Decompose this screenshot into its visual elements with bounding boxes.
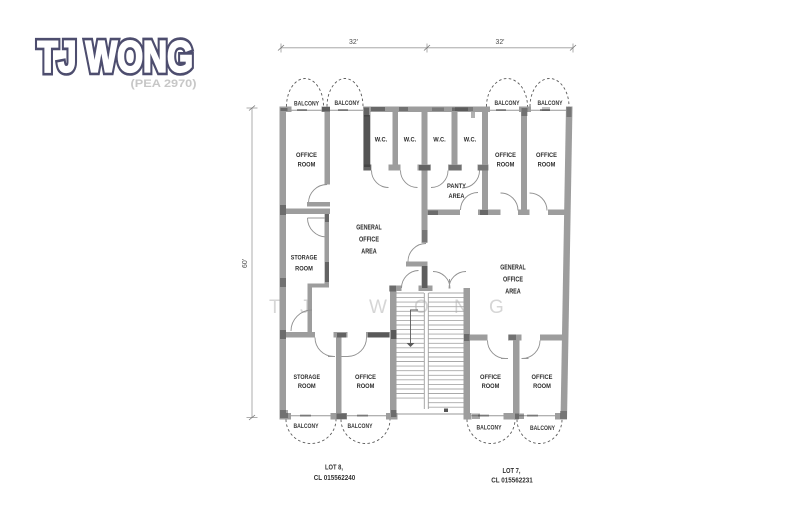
svg-text:OFFICE: OFFICE xyxy=(296,152,318,159)
svg-text:32': 32' xyxy=(496,37,506,46)
svg-text:STORAGE: STORAGE xyxy=(291,255,318,262)
svg-text:W.C.: W.C. xyxy=(375,137,388,144)
svg-text:G: G xyxy=(489,297,504,318)
svg-text:OFFICE: OFFICE xyxy=(355,374,377,381)
svg-text:BALCONY: BALCONY xyxy=(477,425,503,432)
svg-text:STORAGE: STORAGE xyxy=(294,374,321,381)
svg-text:32': 32' xyxy=(349,37,359,46)
svg-text:PANTY: PANTY xyxy=(447,183,467,190)
svg-text:BALCONY: BALCONY xyxy=(348,423,374,430)
svg-text:OFFICE: OFFICE xyxy=(495,152,517,159)
svg-text:LOT 7,: LOT 7, xyxy=(503,468,521,475)
svg-text:BALCONY: BALCONY xyxy=(335,100,361,107)
svg-text:GENERAL: GENERAL xyxy=(356,223,382,232)
svg-text:BALCONY: BALCONY xyxy=(294,101,320,108)
svg-text:ROOM: ROOM xyxy=(295,266,313,273)
svg-text:BALCONY: BALCONY xyxy=(538,100,564,107)
svg-text:CL 015562231: CL 015562231 xyxy=(491,478,533,485)
svg-text:OFFICE: OFFICE xyxy=(532,374,554,381)
svg-text:GENERAL: GENERAL xyxy=(500,263,526,272)
svg-text:BALCONY: BALCONY xyxy=(530,425,556,432)
svg-text:AREA: AREA xyxy=(505,287,521,296)
svg-text:BALCONY: BALCONY xyxy=(294,423,320,430)
svg-text:W.C.: W.C. xyxy=(404,137,417,144)
svg-text:(PEA 2970): (PEA 2970) xyxy=(131,78,197,90)
svg-text:ROOM: ROOM xyxy=(298,383,316,390)
svg-text:ROOM: ROOM xyxy=(357,383,375,390)
svg-text:ROOM: ROOM xyxy=(533,383,551,390)
svg-text:BALCONY: BALCONY xyxy=(495,100,521,107)
svg-text:OFFICE: OFFICE xyxy=(359,235,379,244)
svg-text:ROOM: ROOM xyxy=(298,162,316,169)
svg-text:W: W xyxy=(369,297,387,318)
svg-text:CL 015562240: CL 015562240 xyxy=(314,475,356,482)
svg-text:OFFICE: OFFICE xyxy=(536,152,558,159)
svg-text:TJ WONG: TJ WONG xyxy=(38,33,194,81)
svg-text:OFFICE: OFFICE xyxy=(503,275,523,284)
svg-text:AREA: AREA xyxy=(449,193,465,200)
svg-text:ROOM: ROOM xyxy=(538,162,556,169)
svg-text:LOT 8,: LOT 8, xyxy=(325,465,343,472)
svg-text:W.C.: W.C. xyxy=(433,137,446,144)
svg-text:AREA: AREA xyxy=(361,247,377,256)
svg-text:T: T xyxy=(269,297,281,318)
svg-text:W.C.: W.C. xyxy=(464,137,477,144)
svg-text:OFFICE: OFFICE xyxy=(480,374,502,381)
svg-text:ROOM: ROOM xyxy=(497,162,515,169)
svg-text:ROOM: ROOM xyxy=(482,383,500,390)
svg-text:O: O xyxy=(414,297,429,318)
svg-text:60': 60' xyxy=(240,258,249,268)
